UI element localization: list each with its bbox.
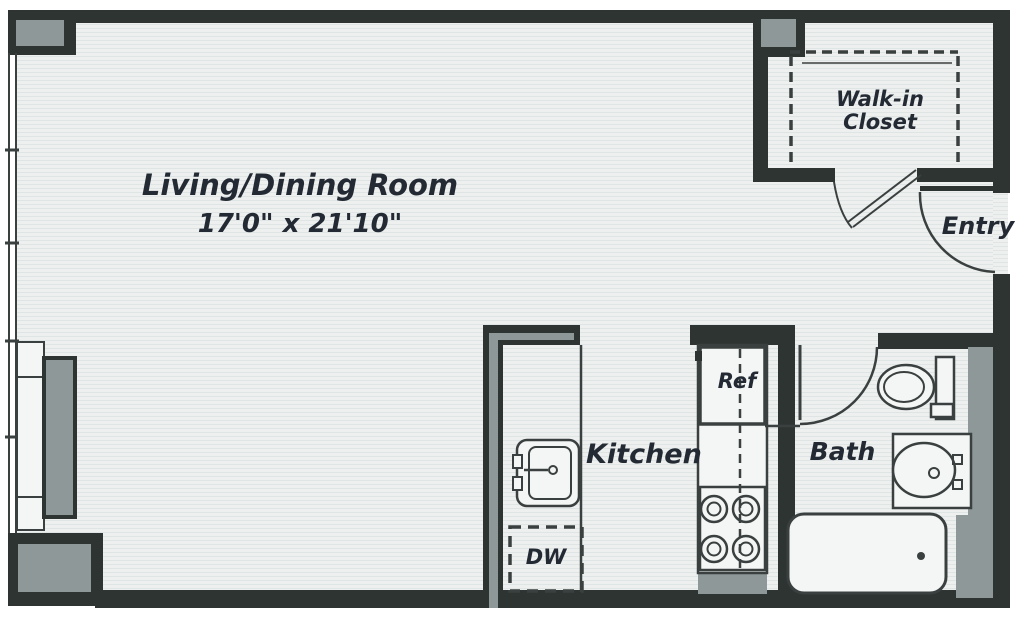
living-room-dimensions: 17'0" x 21'10": [150, 210, 450, 238]
bathtub-icon: [788, 514, 946, 593]
bath-door-swing: [800, 347, 877, 424]
closet-south-wall-right: [917, 168, 1010, 182]
column-bottom-left: [18, 544, 91, 592]
stove-icon: [700, 487, 765, 570]
entry-label: Entry: [933, 214, 1023, 240]
wall-right-lower: [993, 274, 1010, 608]
column-top-left: [16, 20, 64, 46]
bath-features: [788, 345, 971, 593]
kitchen-sink-icon: [513, 440, 579, 506]
dw-label: DW: [516, 546, 576, 569]
window-wall: [5, 53, 75, 533]
vanity-sink-icon: [893, 434, 971, 508]
closet-features: [790, 52, 958, 228]
walk-in-closet-label: Walk-in Closet: [820, 88, 940, 133]
closet-door-leaf: [848, 170, 916, 222]
kitchen-wall-liner-vertical: [489, 333, 498, 608]
kitchen-wall-liner-horizontal: [489, 333, 574, 340]
window-ledge: [17, 342, 44, 530]
bath-label: Bath: [805, 438, 880, 465]
entry-door-jamb: [920, 186, 1008, 191]
radiator: [44, 358, 75, 517]
bath-north-wall: [878, 333, 1010, 349]
closet-door-leaf: [853, 175, 921, 227]
wall-right-upper: [993, 10, 1010, 193]
ref-label: Ref: [707, 370, 767, 393]
closet-west-wall: [753, 45, 768, 182]
floor-plan: Living/Dining Room 17'0" x 21'10" Walk-i…: [0, 0, 1024, 621]
kitchen-label: Kitchen: [586, 440, 696, 469]
living-room-label: Living/Dining Room: [140, 170, 460, 201]
bath-chase-lower: [956, 515, 993, 598]
column-closet: [761, 19, 796, 47]
wall-top: [8, 10, 1010, 23]
closet-south-wall-left: [753, 168, 835, 182]
toilet-icon: [878, 357, 954, 419]
